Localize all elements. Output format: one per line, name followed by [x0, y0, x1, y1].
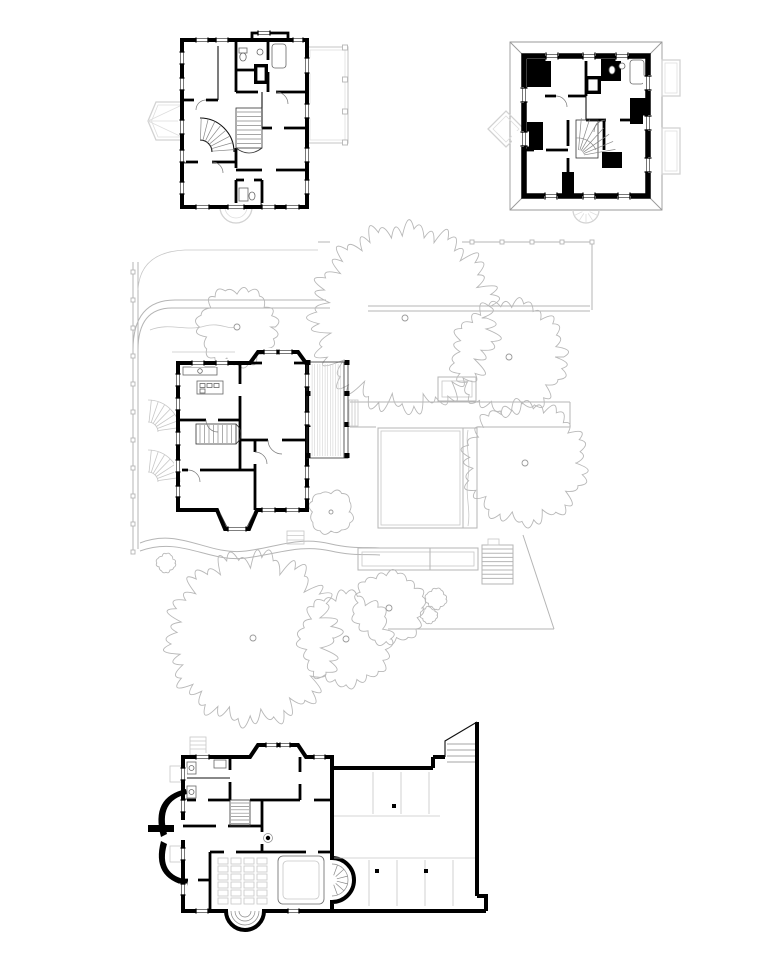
column: [264, 834, 273, 843]
entry-porch-canopy: [148, 102, 182, 140]
wine-cellar: [218, 856, 324, 904]
basement-stair: [230, 800, 250, 826]
veranda: [306, 360, 359, 458]
architectural-plans-svg: [0, 0, 780, 979]
ramp-edge: [445, 722, 477, 757]
terrace-outline: [307, 45, 348, 145]
garage-columns: [375, 804, 428, 873]
parking-stalls: [369, 772, 453, 906]
stair-main: [236, 108, 262, 153]
ground-floor-house: [174, 348, 358, 544]
basement-and-garage-plan: [148, 722, 486, 930]
stair: [196, 424, 241, 444]
door-swings: [556, 96, 606, 132]
trees-layer: [156, 220, 588, 728]
west-door-opening: [179, 820, 187, 840]
attic-floor-plan: [488, 42, 680, 223]
curved-stair-east: [332, 864, 348, 896]
bay-steps: [231, 911, 259, 925]
drawing-canvas: [0, 0, 780, 979]
kitchen-fixtures: [183, 367, 223, 394]
laundry-fixtures: [187, 760, 226, 798]
stair-curved: [200, 118, 234, 152]
upper-floor-plan: [148, 29, 348, 223]
pool: [378, 428, 477, 528]
site-plan-with-ground-floor: [131, 220, 594, 728]
door-swings: [188, 420, 282, 482]
